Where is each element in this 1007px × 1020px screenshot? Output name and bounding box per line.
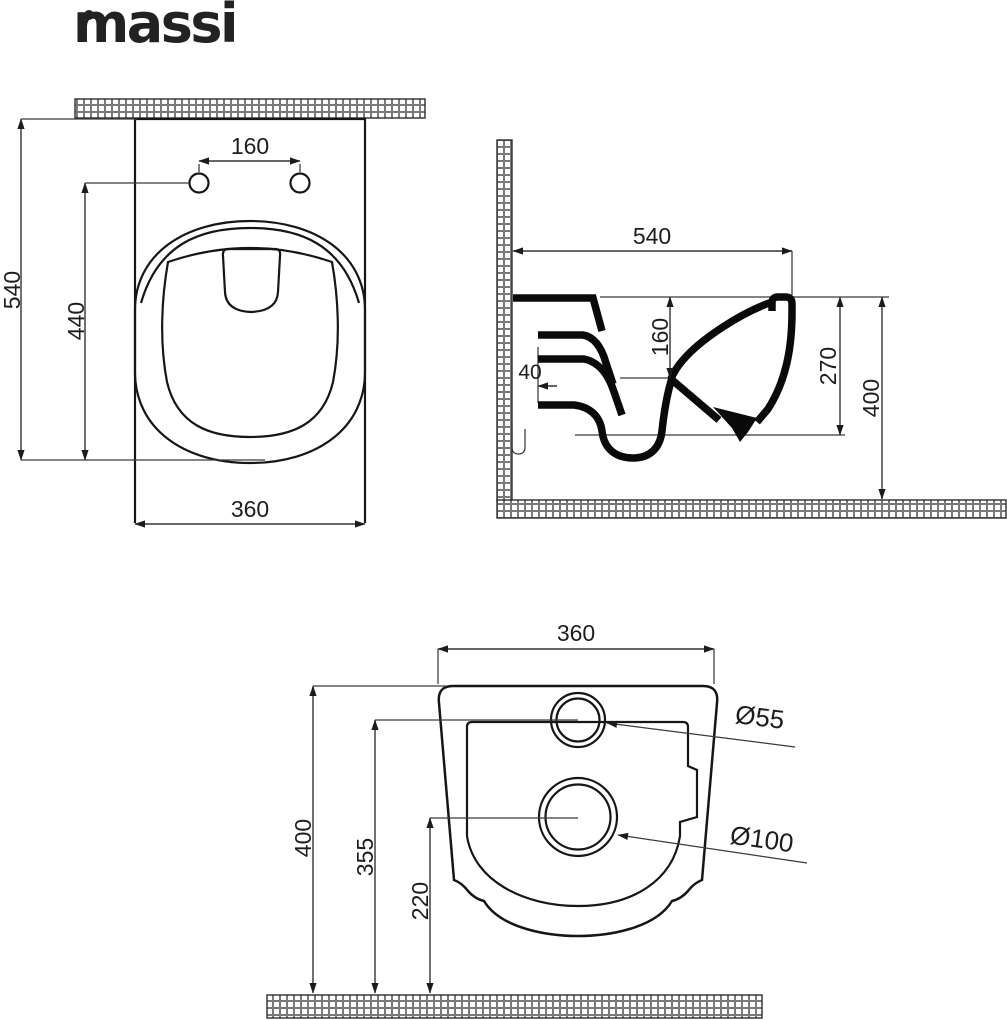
mounting-hole-right — [291, 174, 310, 193]
dim-rear-height: 400 — [290, 686, 316, 993]
dim-top-width: 360 — [135, 496, 365, 524]
dim-side-depth: 540 — [513, 223, 792, 251]
rear-inner-outline — [467, 722, 697, 906]
brand-logo: massi — [73, 0, 236, 55]
dim-rear-width: 360 — [438, 620, 714, 649]
seat-lid-arc — [141, 228, 359, 303]
flush-recess — [223, 249, 280, 312]
top-view: 160 540 440 360 — [0, 99, 425, 524]
dim-label-wall-gap: 40 — [518, 361, 541, 384]
drain-spout — [713, 407, 757, 442]
mounting-hole-left — [190, 174, 209, 193]
dim-label-side-depth: 540 — [633, 223, 671, 249]
seat-opening — [162, 248, 338, 437]
wall-hatch-top-view — [75, 99, 425, 118]
dim-trap-height: 270 — [815, 297, 841, 435]
profile-front-rim — [757, 297, 792, 422]
dim-label-side-height: 400 — [858, 379, 884, 417]
drawing-canvas: massi 160 540 — [0, 0, 1007, 1020]
rear-view: 360 400 355 220 Ø55 Ø100 — [267, 620, 807, 1018]
dim-label-top-width: 360 — [231, 496, 269, 522]
brand-logo-text: massi — [73, 0, 236, 55]
dim-label-hole-spacing: 160 — [231, 133, 269, 159]
dim-label-rear-width: 360 — [557, 620, 595, 646]
drain-hole-outer — [539, 778, 617, 856]
profile-trap — [538, 378, 672, 458]
leader-drain-diameter: Ø100 — [618, 820, 807, 863]
floor-hatch-rear-view — [267, 995, 762, 1018]
technical-drawing-sheet: massi 160 540 — [0, 0, 1007, 1020]
profile-drain-funnel — [671, 379, 719, 420]
drain-hole-inner — [546, 785, 611, 850]
logo-dot-icon — [84, 10, 94, 20]
bowl-outline — [135, 221, 365, 463]
dim-label-hole-depth: 440 — [63, 302, 89, 340]
dim-label-inlet-diameter: Ø55 — [734, 699, 786, 735]
dim-hole-spacing: 160 — [199, 133, 300, 172]
wall-hatch-side-view — [497, 140, 512, 501]
supply-pipe-outline — [512, 429, 525, 454]
dim-label-inlet-height: 355 — [352, 838, 378, 876]
dim-label-total-depth: 540 — [0, 271, 25, 309]
dim-wall-gap: 40 — [518, 361, 557, 386]
dim-side-height: 400 — [858, 297, 884, 499]
floor-hatch-side-view — [497, 500, 1006, 518]
dim-label-trap-height: 270 — [815, 347, 841, 385]
rear-body-outline — [439, 686, 717, 936]
dim-label-drain-height: 220 — [407, 882, 433, 920]
dim-drain-height: 220 — [407, 818, 433, 993]
dim-hole-depth: 440 — [63, 183, 189, 460]
profile-deck — [513, 298, 602, 331]
dim-label-rim-drop: 160 — [647, 318, 673, 356]
profile-bowl-inner — [671, 302, 772, 379]
dim-label-rear-height: 400 — [290, 819, 316, 857]
dim-inlet-height: 355 — [352, 720, 378, 993]
dim-rim-drop: 160 — [647, 297, 673, 378]
side-view: 540 160 40 270 400 — [497, 140, 1006, 518]
